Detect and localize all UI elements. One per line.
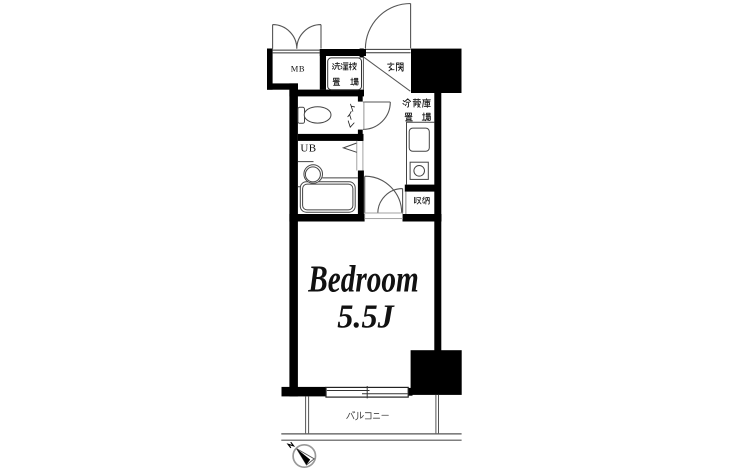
svg-text:MB: MB (291, 64, 305, 74)
svg-text:UB: UB (300, 143, 316, 155)
svg-text:Bedroom: Bedroom (307, 259, 418, 301)
svg-text:5.5J: 5.5J (337, 299, 394, 336)
